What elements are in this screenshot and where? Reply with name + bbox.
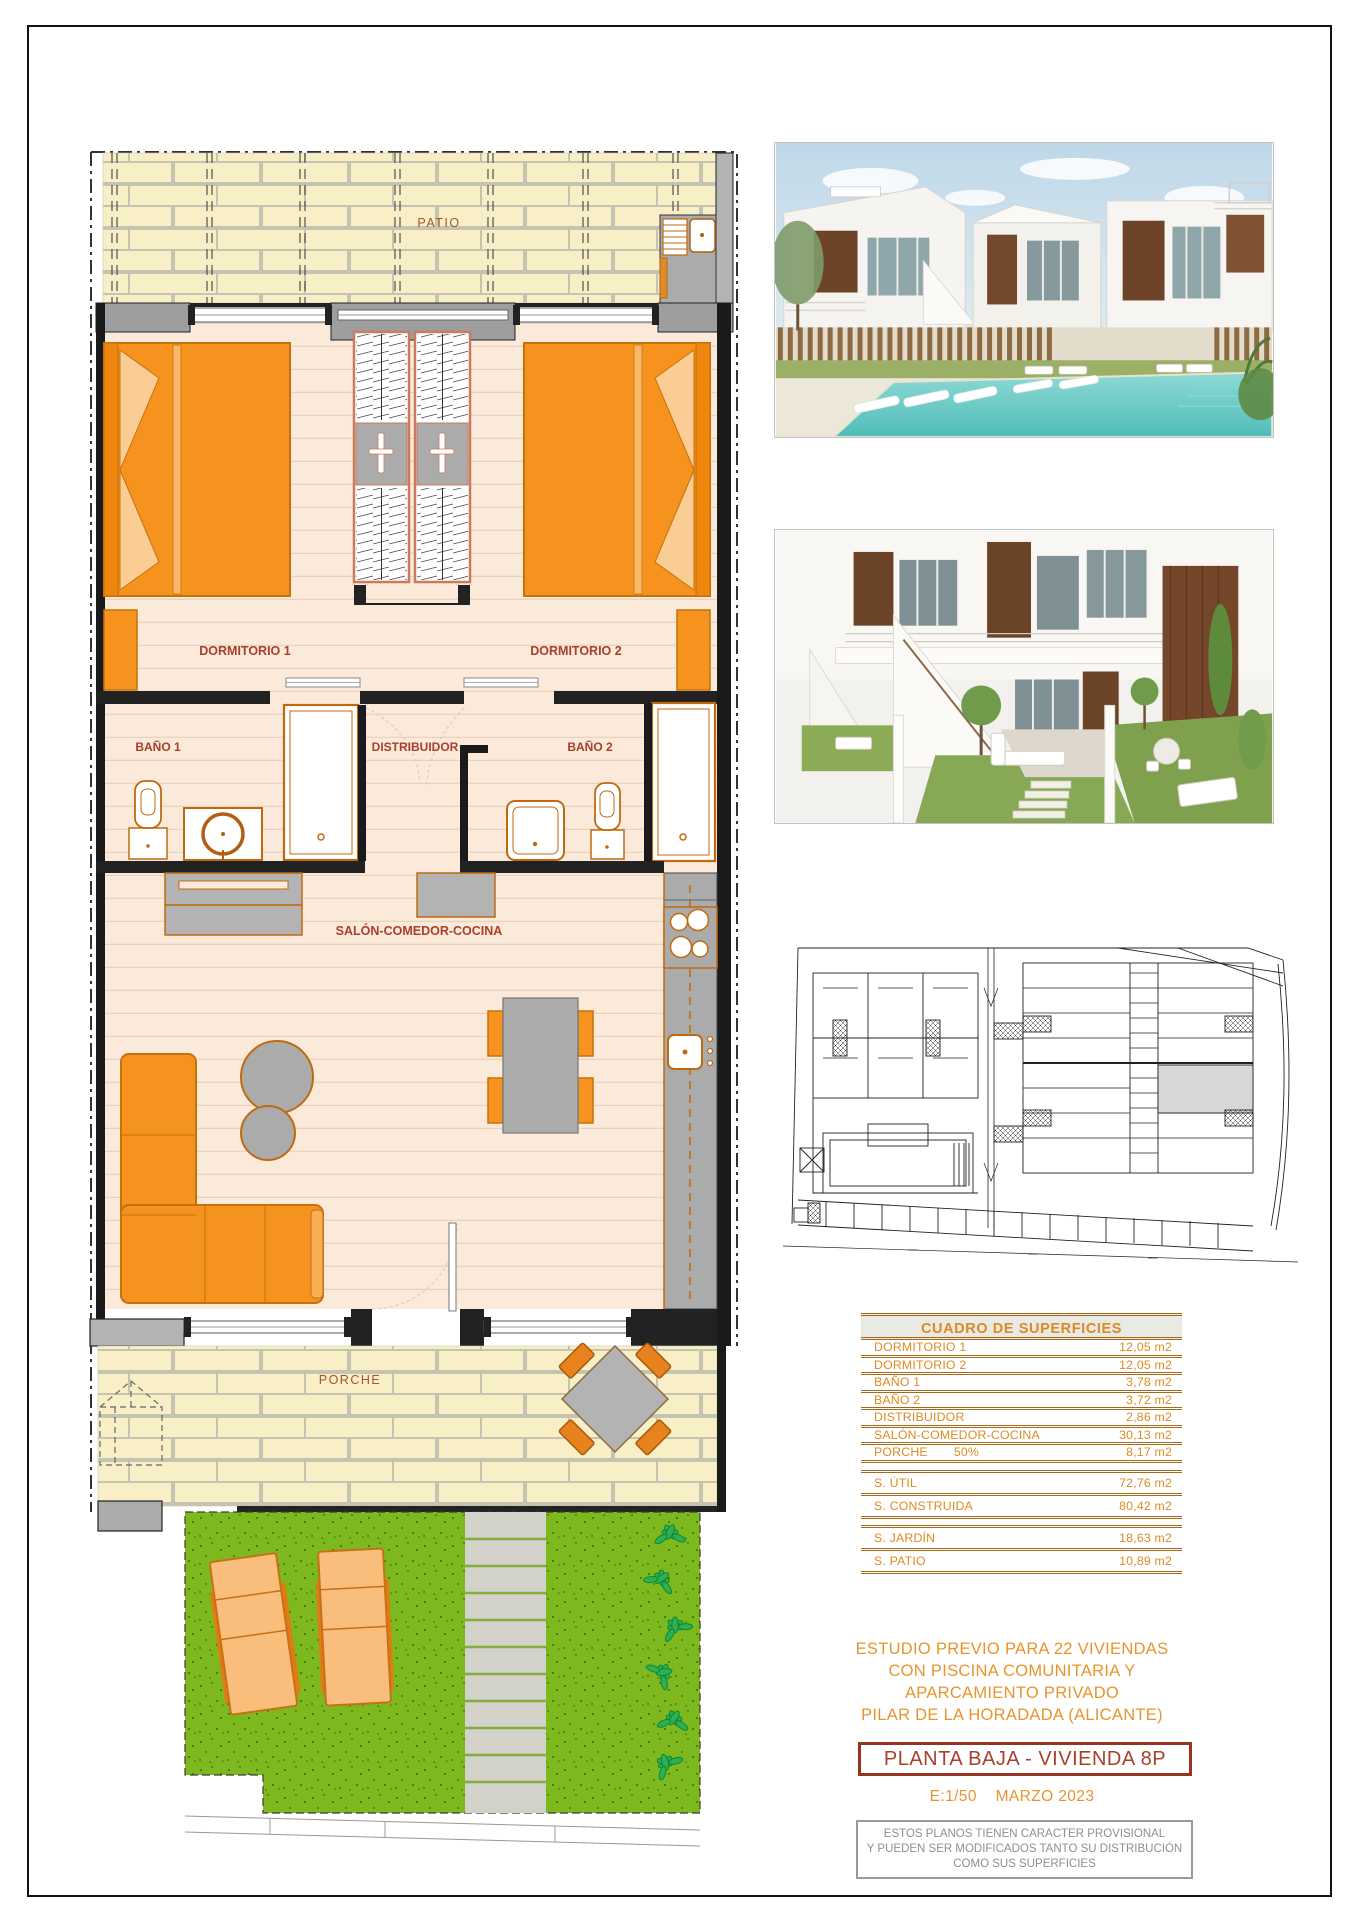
row-label: DISTRIBUIDOR: [874, 1410, 965, 1424]
table-row: S. ÚTIL72,76 m2: [861, 1473, 1182, 1496]
room-label-salon: SALÓN-COMEDOR-COCINA: [336, 923, 503, 938]
row-value: 10,89 m2: [1119, 1554, 1172, 1568]
row-value: 3,78 m2: [1126, 1375, 1172, 1389]
surface-table-title: CUADRO DE SUPERFICIES: [861, 1313, 1182, 1340]
toilet-1: [129, 781, 167, 859]
media-sideboard: [165, 873, 302, 935]
photo-render-gardens: [774, 529, 1274, 824]
floor-plan-drawing: PATIO: [85, 140, 745, 1860]
row-value: 12,05 m2: [1119, 1340, 1172, 1354]
room-label-bano1: BAÑO 1: [135, 739, 181, 754]
wood-fence: [776, 327, 1272, 363]
patio-utility-unit: [660, 215, 716, 310]
cabinet-distribuidor: [417, 873, 495, 917]
patio-area: PATIO: [103, 153, 733, 310]
photo-render-pool: [774, 142, 1274, 438]
title-line: CON PISCINA COMUNITARIA Y: [828, 1660, 1196, 1682]
row-value: 3,72 m2: [1126, 1393, 1172, 1407]
sidewalk-lines: [185, 1816, 700, 1846]
room-label-dormitorio2: DORMITORIO 2: [530, 644, 621, 658]
row-value: 2,86 m2: [1126, 1410, 1172, 1424]
building-right: [1107, 183, 1272, 332]
sink-2: [507, 801, 564, 860]
toilet-2: [591, 783, 624, 859]
plan-name-box: PLANTA BAJA - VIVIENDA 8P: [858, 1742, 1192, 1776]
surface-table-totals-2: S. JARDÍN18,63 m2 S. PATIO10,89 m2: [861, 1525, 1182, 1574]
disclaimer-line: Y PUEDEN SER MODIFICADOS TANTO SU DISTRI…: [860, 1842, 1189, 1857]
porch-table-set: [559, 1343, 672, 1456]
row-label: BAÑO 1: [874, 1375, 920, 1389]
row-value: 30,13 m2: [1119, 1428, 1172, 1442]
porch-area: PORCHE: [98, 1343, 726, 1531]
room-label-patio: PATIO: [417, 216, 460, 230]
row-label: SALÓN-COMEDOR-COCINA: [874, 1428, 1040, 1442]
row-value: 72,76 m2: [1119, 1476, 1172, 1490]
scale-value: E:1/50: [930, 1788, 977, 1805]
project-title: ESTUDIO PREVIO PARA 22 VIVIENDAS CON PIS…: [828, 1638, 1196, 1726]
dresser-dormitorio2: [677, 610, 710, 690]
row-label: DORMITORIO 1: [874, 1340, 966, 1354]
table-row: S. CONSTRUIDA80,42 m2: [861, 1496, 1182, 1519]
kitchen-counter: [664, 873, 717, 1309]
shower-1: [284, 705, 358, 860]
row-value: 18,63 m2: [1119, 1531, 1172, 1545]
date-value: MARZO 2023: [996, 1788, 1095, 1805]
table-row: BAÑO 23,72 m2: [861, 1393, 1182, 1411]
row-label: S. ÚTIL: [874, 1476, 917, 1490]
row-value: 8,17 m2: [1126, 1445, 1172, 1459]
title-line: PILAR DE LA HORADADA (ALICANTE): [828, 1704, 1196, 1726]
disclaimer-box: ESTOS PLANOS TIENEN CARACTER PROVISIONAL…: [856, 1820, 1193, 1879]
row-label: BAÑO 2: [874, 1393, 920, 1407]
table-row: SALÓN-COMEDOR-COCINA30,13 m2: [861, 1428, 1182, 1446]
disclaimer-line: ESTOS PLANOS TIENEN CARACTER PROVISIONAL: [860, 1827, 1189, 1842]
table-row: S. JARDÍN18,63 m2: [861, 1528, 1182, 1551]
plan-sheet: PATIO: [0, 0, 1357, 1920]
row-label: PORCHE: [874, 1445, 928, 1459]
table-row: PORCHE50%8,17 m2: [861, 1445, 1182, 1463]
shower-2: [652, 703, 715, 861]
wardrobe-left: [354, 332, 409, 582]
sink-1: [184, 808, 262, 860]
room-label-distribuidor: DISTRIBUIDOR: [372, 740, 459, 754]
row-label: S. JARDÍN: [874, 1531, 935, 1545]
surface-table: CUADRO DE SUPERFICIES DORMITORIO 112,05 …: [861, 1313, 1182, 1574]
south-wall: [90, 1309, 717, 1346]
row-label: S. CONSTRUIDA: [874, 1499, 973, 1513]
wardrobe-right: [415, 332, 470, 582]
row-label: S. PATIO: [874, 1554, 926, 1568]
highlighted-unit-8p: [1158, 1065, 1253, 1113]
title-line: ESTUDIO PREVIO PARA 22 VIVIENDAS: [828, 1638, 1196, 1660]
bedroom2-window: [513, 305, 659, 325]
stove: [664, 907, 717, 968]
building-middle: [973, 205, 1101, 333]
dresser-dormitorio1: [104, 610, 137, 690]
porch-step: [98, 1501, 162, 1531]
pool: [834, 372, 1273, 437]
bed-dormitorio1: [104, 343, 290, 596]
dining-table: [488, 998, 593, 1133]
garden-path: [465, 1512, 546, 1813]
room-label-porche: PORCHE: [319, 1373, 381, 1387]
sun-lounger-2: [314, 1548, 395, 1706]
table-row: BAÑO 13,78 m2: [861, 1375, 1182, 1393]
east-wall: [717, 303, 731, 1346]
surface-table-rows: DORMITORIO 112,05 m2 DORMITORIO 212,05 m…: [861, 1340, 1182, 1463]
scale-and-date: E:1/50 MARZO 2023: [828, 1788, 1196, 1806]
surface-table-totals-1: S. ÚTIL72,76 m2 S. CONSTRUIDA80,42 m2: [861, 1470, 1182, 1519]
row-value: 80,42 m2: [1119, 1499, 1172, 1513]
entrance-door-leaf: [449, 1223, 456, 1311]
table-row: DISTRIBUIDOR2,86 m2: [861, 1410, 1182, 1428]
disclaimer-line: COMO SUS SUPERFICIES: [860, 1857, 1189, 1872]
row-value: 12,05 m2: [1119, 1358, 1172, 1372]
room-label-dormitorio1: DORMITORIO 1: [199, 644, 290, 658]
bed-dormitorio2: [524, 343, 710, 596]
garden-area: [185, 1512, 700, 1813]
title-line: APARCAMIENTO PRIVADO: [828, 1682, 1196, 1704]
bedroom1-window: [188, 305, 332, 325]
room-label-bano2: BAÑO 2: [567, 739, 613, 754]
patio-right-wall: [716, 153, 733, 303]
table-row: DORMITORIO 212,05 m2: [861, 1358, 1182, 1376]
table-row: S. PATIO10,89 m2: [861, 1551, 1182, 1574]
row-label: DORMITORIO 2: [874, 1358, 966, 1372]
site-plan-drawing: [778, 928, 1315, 1270]
row-note: 50%: [954, 1445, 979, 1459]
